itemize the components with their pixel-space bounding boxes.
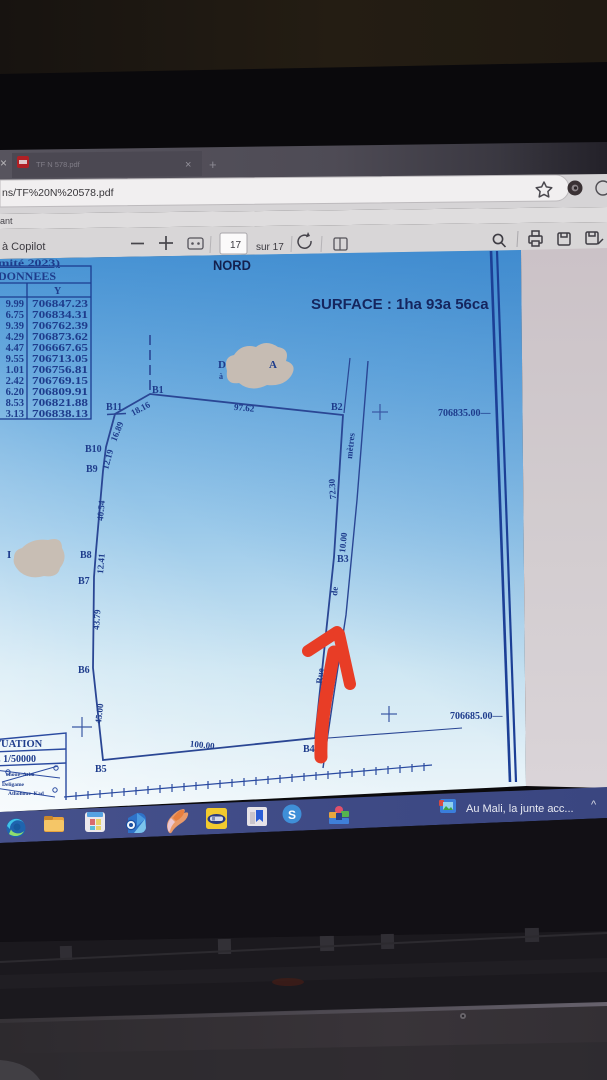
svg-text:B7: B7 [78,576,90,587]
svg-text:NORD: NORD [213,258,251,274]
svg-text:1.01: 1.01 [6,365,24,376]
svg-text:I: I [7,549,11,561]
svg-text:B10: B10 [85,444,102,455]
svg-text:8.53: 8.53 [6,398,24,409]
svg-text:B5: B5 [95,764,107,775]
svg-text:B11: B11 [106,402,122,413]
svg-text:B2: B2 [331,402,343,413]
svg-text:706834.31: 706834.31 [32,310,88,321]
svg-text:^: ^ [591,799,597,811]
svg-text:9.39: 9.39 [6,321,24,332]
svg-text:B9: B9 [86,464,98,475]
svg-text:40.54: 40.54 [95,500,107,522]
svg-text:2.42: 2.42 [6,376,24,387]
svg-text:sur 17: sur 17 [256,242,284,253]
svg-text:6.20: 6.20 [6,387,24,398]
svg-text:à: à [219,372,223,381]
svg-text:706838.13: 706838.13 [32,409,88,420]
svg-text:E 1/50000: E 1/50000 [0,754,36,765]
svg-text:B6: B6 [78,665,90,676]
svg-text:17: 17 [230,240,242,251]
svg-text:706835.00—: 706835.00— [438,408,492,419]
svg-text:B8: B8 [80,550,92,561]
svg-text:B3: B3 [337,554,349,565]
svg-text:Athohoue–Kad: Athohoue–Kad [8,791,44,797]
svg-text:+: + [209,157,217,172]
svg-text:de: de [329,586,340,596]
svg-text:B4: B4 [303,744,315,755]
svg-text:TF N 578.pdf: TF N 578.pdf [36,160,81,169]
svg-text:Deligame: Deligame [2,782,25,788]
svg-text:ns/TF%20N%20578.pdf: ns/TF%20N%20578.pdf [2,187,114,199]
svg-text:72.30: 72.30 [327,478,338,499]
svg-text:Y: Y [54,286,62,297]
svg-text:SURFACE : 1ha 93a 56ca: SURFACE : 1ha 93a 56ca [311,296,489,313]
svg-text:706762.39: 706762.39 [32,321,88,332]
svg-text:12.41: 12.41 [95,553,107,575]
svg-text:Au Mali, la junte acc...: Au Mali, la junte acc... [466,803,574,815]
svg-text:706821.88: 706821.88 [32,398,88,409]
svg-text:B1: B1 [152,385,164,396]
svg-text:706713.05: 706713.05 [32,354,88,365]
svg-text:43.79: 43.79 [91,609,102,630]
svg-text:9.99: 9.99 [6,299,24,310]
svg-text:706847.23: 706847.23 [32,299,88,310]
svg-text:×: × [0,156,7,170]
svg-text:A: A [269,359,277,371]
svg-text:ant: ant [0,216,13,226]
svg-text:706809.91: 706809.91 [32,387,88,398]
svg-text:TUATION: TUATION [0,739,43,750]
svg-text:6.75: 6.75 [6,310,24,321]
svg-text:à Copilot: à Copilot [2,241,45,253]
svg-text:4.47: 4.47 [6,343,24,354]
svg-text:DONNEES: DONNEES [0,269,56,283]
svg-text:D: D [218,359,226,371]
svg-text:706769.15: 706769.15 [32,376,88,387]
svg-text:×: × [185,159,191,171]
svg-text:S: S [288,808,296,822]
svg-text:ohoue–Atho: ohoue–Atho [6,772,35,778]
svg-text:9.55: 9.55 [6,354,24,365]
svg-text:706756.81: 706756.81 [32,365,88,376]
svg-text:4.29: 4.29 [6,332,24,343]
svg-text:3.13: 3.13 [6,409,24,420]
svg-text:97.62: 97.62 [234,402,256,414]
svg-text:706873.62: 706873.62 [32,332,88,343]
svg-text:706667.65: 706667.65 [32,343,88,354]
svg-text:706685.00—: 706685.00— [450,711,504,722]
